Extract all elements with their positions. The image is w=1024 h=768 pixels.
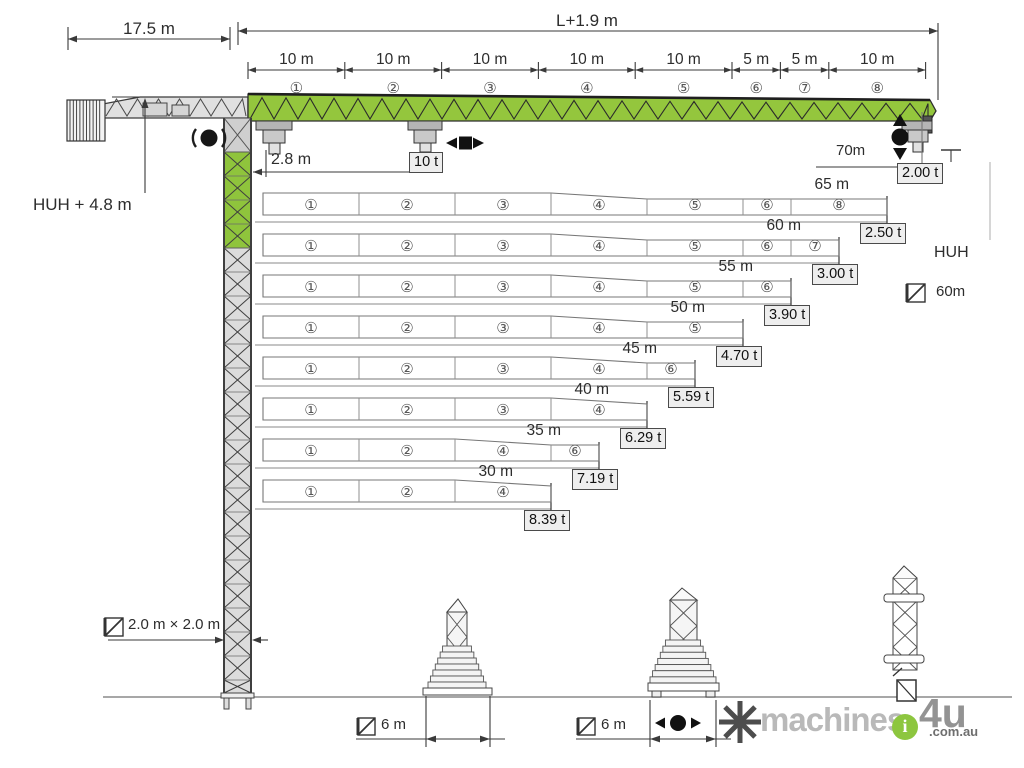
machines4u-logo-icon — [719, 701, 761, 743]
hook-height-right-label: HUH — [934, 244, 969, 262]
trolley-10t — [408, 121, 442, 152]
watermark-brand: machines — [760, 701, 904, 739]
row-segment-number: ⑥ — [760, 197, 773, 214]
segment-number: ⑤ — [677, 80, 690, 97]
row-segment-number: ② — [400, 238, 413, 255]
row-segment-number: ⑥ — [568, 443, 581, 460]
row-segment-number: ⑤ — [688, 238, 701, 255]
row-segment-number: ① — [304, 197, 317, 214]
row-segment-number: ⑥ — [664, 361, 677, 378]
base-left-label: 6 m — [381, 717, 406, 734]
row-segment-number: ② — [400, 197, 413, 214]
travel-icon-base — [655, 715, 701, 731]
row-segment-number: ⑥ — [760, 279, 773, 296]
segment-number: ④ — [580, 80, 593, 97]
row-segment-number: ② — [400, 320, 413, 337]
tower-section-label: 2.0 m × 2.0 m — [128, 617, 220, 634]
row-segment-number: ③ — [496, 197, 509, 214]
counter-jib — [67, 97, 248, 141]
row-segment-number: ④ — [496, 484, 509, 501]
tip-radius-label: 70m — [836, 143, 865, 160]
row-segment-number: ③ — [496, 279, 509, 296]
row-radius-label: 40 m — [575, 381, 609, 398]
segment-number: ⑥ — [749, 80, 762, 97]
trolley-parked — [256, 121, 292, 154]
row-capacity-box: 8.39 t — [524, 510, 570, 531]
row-segment-number: ④ — [592, 320, 605, 337]
row-segment-number: ① — [304, 279, 317, 296]
row-capacity-box: 3.00 t — [812, 264, 858, 285]
section-icon-tower — [105, 618, 123, 636]
row-capacity-box: 5.59 t — [668, 387, 714, 408]
row-segment-number: ④ — [592, 197, 605, 214]
min-radius-label: 2.8 m — [271, 151, 311, 169]
base-right-label: 6 m — [601, 717, 626, 734]
row-radius-label: 55 m — [719, 258, 753, 275]
segment-number: ③ — [483, 80, 496, 97]
row-segment-number: ⑤ — [688, 197, 701, 214]
row-bar — [263, 275, 791, 297]
watermark-badge: i — [892, 714, 918, 740]
row-segment-number: ② — [400, 361, 413, 378]
max-capacity-box: 10 t — [409, 152, 443, 173]
tip-capacity-box: 2.00 t — [897, 163, 943, 184]
row-radius-label: 35 m — [527, 422, 561, 439]
row-segment-number: ① — [304, 484, 317, 501]
row-segment-number: ③ — [496, 361, 509, 378]
row-radius-label: 45 m — [623, 340, 657, 357]
base-left — [423, 599, 492, 695]
hook-height-left-label: HUH + 4.8 m — [33, 196, 132, 215]
load-chart-rows: ①②③④⑤⑥⑧65 m①②③④⑤⑥⑦60 m①②③④⑤⑥55 m①②③④⑤50 … — [255, 176, 887, 516]
row-segment-number: ① — [304, 402, 317, 419]
row-segment-number: ② — [400, 402, 413, 419]
row-segment-number: ① — [304, 443, 317, 460]
row-segment-number: ④ — [496, 443, 509, 460]
row-radius-label: 65 m — [815, 176, 849, 193]
row-capacity-box: 4.70 t — [716, 346, 762, 367]
row-segment-number: ② — [400, 443, 413, 460]
row-bar — [263, 193, 887, 215]
segment-number: ⑧ — [870, 80, 883, 97]
segment-dim-label: 10 m — [570, 51, 604, 68]
row-radius-label: 50 m — [671, 299, 705, 316]
jib-segment-dimensions: 10 m①10 m②10 m③10 m④10 m⑤5 m⑥5 m⑦10 m⑧ — [248, 51, 926, 97]
machinery-box — [172, 105, 189, 116]
row-segment-number: ④ — [592, 279, 605, 296]
row-bar — [263, 357, 695, 379]
row-segment-number: ④ — [592, 361, 605, 378]
tower-base — [221, 693, 254, 698]
segment-dim-label: 10 m — [473, 51, 507, 68]
counter-jib-length-label: 17.5 m — [99, 20, 199, 39]
row-segment-number: ④ — [592, 238, 605, 255]
row-segment-number: ③ — [496, 320, 509, 337]
row-segment-number: ⑦ — [808, 238, 821, 255]
segment-dim-label: 5 m — [792, 51, 818, 68]
row-segment-number: ③ — [496, 402, 509, 419]
jib-total-length-label: L+1.9 m — [537, 12, 637, 31]
row-segment-number: ① — [304, 238, 317, 255]
row-capacity-box: 7.19 t — [572, 469, 618, 490]
segment-dim-label: 10 m — [666, 51, 700, 68]
row-segment-number: ① — [304, 320, 317, 337]
row-segment-number: ① — [304, 361, 317, 378]
slewing-icon — [193, 129, 225, 147]
row-radius-label: 30 m — [479, 463, 513, 480]
row-radius-label: 60 m — [767, 217, 801, 234]
row-segment-number: ④ — [592, 402, 605, 419]
row-segment-number: ⑤ — [688, 320, 701, 337]
row-segment-number: ② — [400, 279, 413, 296]
row-segment-number: ⑥ — [760, 238, 773, 255]
segment-dim-label: 10 m — [279, 51, 313, 68]
tower-mast — [224, 248, 251, 693]
row-capacity-box: 2.50 t — [860, 223, 906, 244]
section-icon-base-left — [358, 718, 375, 735]
segment-dim-label: 10 m — [376, 51, 410, 68]
base-left-dimension — [356, 696, 505, 747]
row-capacity-box: 3.90 t — [764, 305, 810, 326]
row-segment-number: ③ — [496, 238, 509, 255]
section-icon-base-right — [578, 718, 595, 735]
watermark-domain: .com.au — [929, 724, 978, 739]
crane-drawing: 10 m①10 m②10 m③10 m④10 m⑤5 m⑥5 m⑦10 m⑧ — [0, 0, 1024, 768]
tower — [221, 118, 254, 709]
trolley-travel-icon — [446, 137, 484, 150]
row-segment-number: ⑤ — [688, 279, 701, 296]
tower-option-label: 60m — [936, 284, 965, 301]
jib — [248, 94, 936, 133]
section-icon-60m — [907, 284, 925, 302]
row-capacity-box: 6.29 t — [620, 428, 666, 449]
row-segment-number: ② — [400, 484, 413, 501]
base-right — [648, 588, 719, 697]
segment-dim-label: 5 m — [743, 51, 769, 68]
anchor-tower-segment — [884, 566, 924, 701]
segment-dim-label: 10 m — [860, 51, 894, 68]
crane-load-diagram: 10 m①10 m②10 m③10 m④10 m⑤5 m⑥5 m⑦10 m⑧ — [0, 0, 1024, 768]
base-right-dimension — [576, 700, 731, 747]
segment-number: ⑦ — [798, 80, 811, 97]
row-segment-number: ⑧ — [832, 197, 845, 214]
